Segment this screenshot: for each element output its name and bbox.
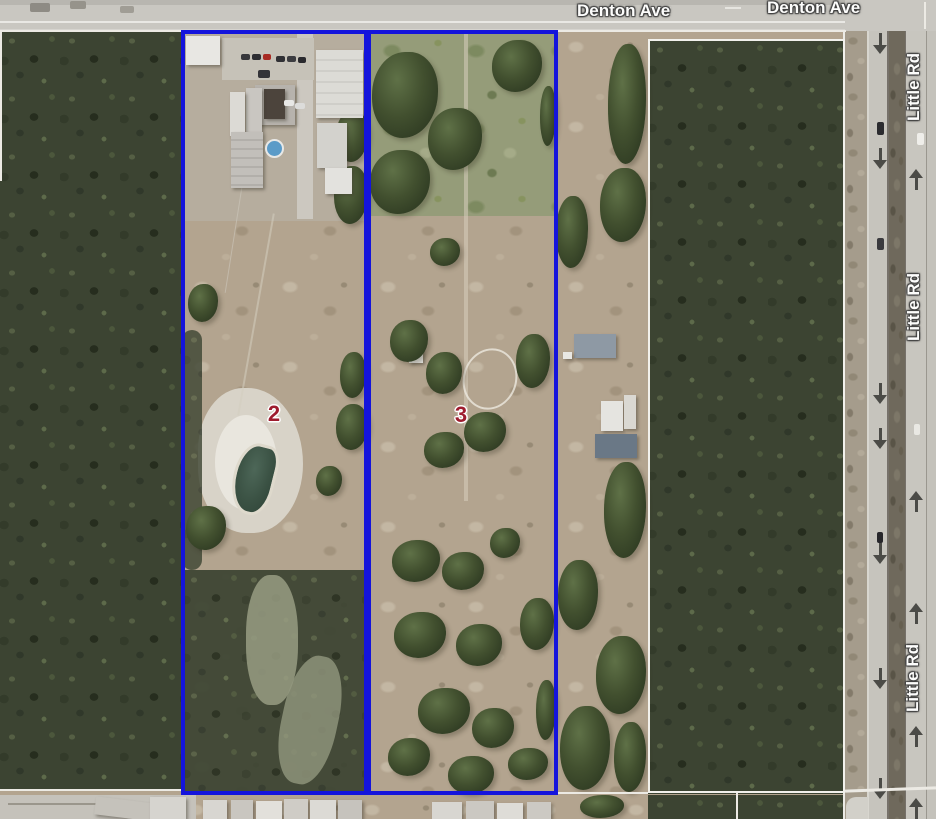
parcel-boundary-line [0, 30, 183, 32]
building [595, 434, 637, 458]
parcel-outline-white[interactable] [648, 39, 845, 793]
traffic-arrow-up-icon [909, 797, 923, 819]
traffic-arrow-down-icon [873, 148, 887, 170]
vehicle [917, 133, 924, 145]
building [466, 801, 494, 819]
building [527, 802, 551, 819]
lane-dash [725, 7, 741, 9]
parcel-boundary-line [0, 31, 2, 181]
building [284, 799, 308, 819]
traffic-arrow-up-icon [909, 725, 923, 747]
traffic-arrow-up-icon [909, 490, 923, 512]
building [574, 334, 616, 358]
traffic-arrow-up-icon [909, 602, 923, 624]
building [231, 800, 253, 819]
vehicle [70, 1, 86, 9]
aerial-map-canvas[interactable]: Denton Ave Denton Ave Little Rd Little R… [0, 0, 936, 819]
street-label-denton-ave: Denton Ave [577, 1, 670, 21]
traffic-arrow-down-icon [873, 383, 887, 405]
vehicle [877, 532, 883, 543]
vehicle [120, 6, 134, 13]
building [150, 797, 186, 819]
parcel-boundary-line [0, 789, 184, 791]
building [624, 395, 636, 429]
vehicle [30, 3, 50, 12]
crosswalk-line [924, 2, 926, 29]
traffic-arrow-up-icon [909, 168, 923, 190]
vehicle [914, 424, 920, 435]
forest-bottom-east [648, 795, 846, 819]
building [338, 800, 362, 819]
vehicle [877, 238, 884, 250]
building [310, 800, 336, 819]
parcel-boundary-line [736, 793, 738, 819]
street-label-little-rd: Little Rd [903, 641, 923, 715]
building [563, 352, 572, 359]
building [432, 802, 462, 819]
building [497, 803, 523, 819]
traffic-arrow-down-icon [873, 543, 887, 565]
parcel-boundary-line [556, 30, 846, 32]
building [203, 800, 227, 819]
parcel-label-3: 3 [449, 402, 473, 428]
road-shoulder [845, 31, 867, 819]
parcel-label-2: 2 [262, 401, 286, 427]
forest-area-west [0, 31, 183, 791]
street-label-little-rd: Little Rd [904, 270, 924, 344]
traffic-arrow-down-icon [873, 428, 887, 450]
parcel-boundary-line [556, 792, 648, 794]
street-label-little-rd: Little Rd [904, 50, 924, 124]
turn-bay [846, 797, 868, 819]
building [256, 801, 282, 819]
traffic-arrow-down-icon [873, 33, 887, 55]
street-label-denton-ave: Denton Ave [767, 0, 860, 18]
vehicle [877, 122, 884, 135]
traffic-arrow-down-icon [873, 668, 887, 690]
building [601, 401, 623, 431]
